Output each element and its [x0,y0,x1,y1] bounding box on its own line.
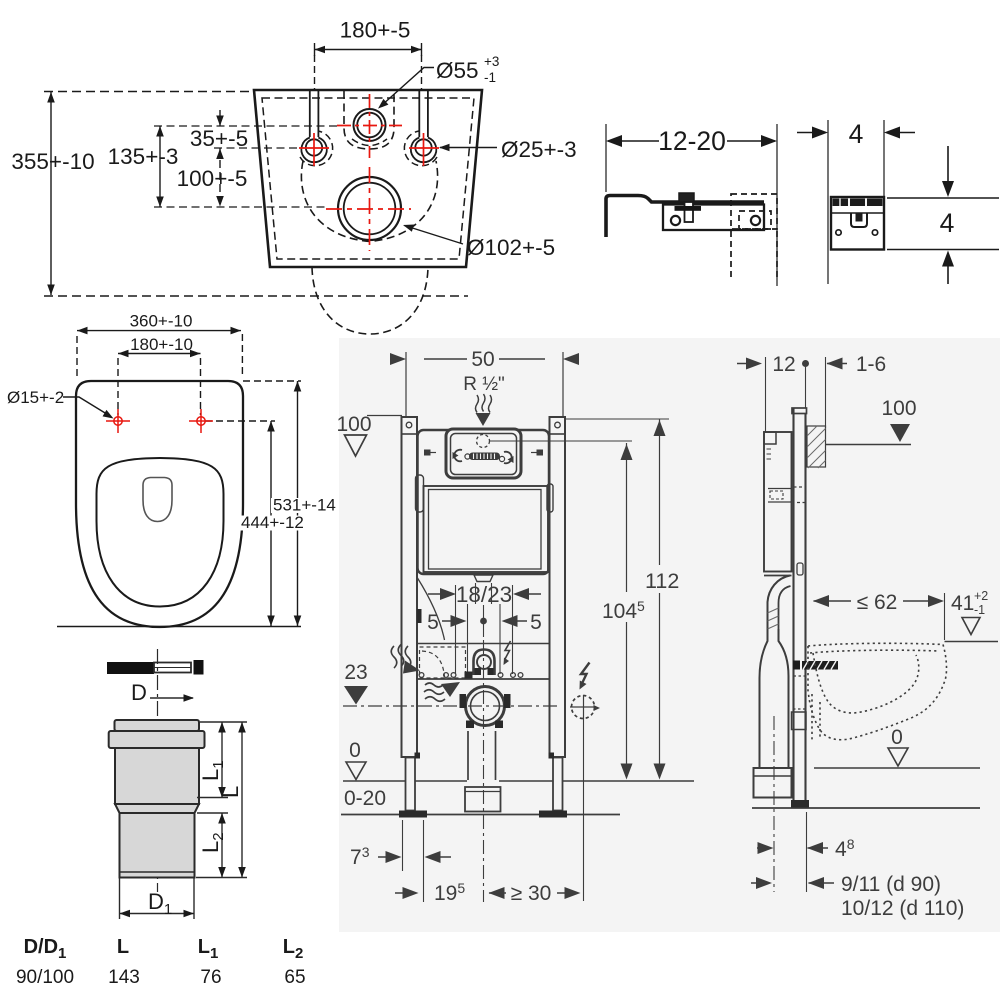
svg-text:0: 0 [891,726,903,749]
svg-text:100: 100 [336,413,371,436]
svg-text:D: D [131,680,147,705]
svg-text:444+-12: 444+-12 [241,513,304,532]
svg-text:-1: -1 [974,603,985,617]
svg-text:360+-10: 360+-10 [130,312,193,331]
svg-text:4: 4 [940,208,955,238]
svg-text:23: 23 [344,661,367,684]
svg-text:143: 143 [108,967,140,988]
svg-text:180+-5: 180+-5 [340,18,411,43]
svg-text:R ½": R ½" [463,374,505,395]
svg-text:Ø15+-2: Ø15+-2 [7,388,64,407]
svg-text:76: 76 [200,967,221,988]
svg-text:12-20: 12-20 [658,126,726,156]
svg-text:100+-5: 100+-5 [177,166,248,191]
svg-text:18/23: 18/23 [456,582,512,607]
svg-text:0-20: 0-20 [344,787,386,810]
svg-text:4: 4 [849,119,864,149]
svg-text:Ø102+-5: Ø102+-5 [467,235,555,260]
svg-text:65: 65 [284,967,305,988]
svg-text:35+-5: 35+-5 [190,126,248,151]
svg-text:112: 112 [645,569,679,593]
svg-text:180+-10: 180+-10 [130,335,193,354]
svg-text:10/12 (d 110): 10/12 (d 110) [841,897,964,920]
svg-text:Ø55: Ø55 [436,58,479,83]
svg-text:50: 50 [471,348,494,371]
svg-text:+2: +2 [974,589,988,603]
svg-text:41: 41 [951,592,974,615]
svg-text:≥ 30: ≥ 30 [511,882,552,905]
svg-text:12: 12 [772,353,795,376]
svg-text:L: L [218,786,243,798]
svg-text:531+-14: 531+-14 [273,496,336,515]
svg-text:0: 0 [349,739,361,762]
svg-text:+3: +3 [484,54,499,69]
svg-text:135+-3: 135+-3 [108,144,179,169]
svg-text:≤ 62: ≤ 62 [857,591,898,614]
svg-text:-1: -1 [484,70,496,85]
svg-text:5: 5 [427,611,439,634]
svg-text:L: L [117,936,129,958]
svg-text:5: 5 [530,611,542,634]
svg-text:Ø25+-3: Ø25+-3 [501,137,577,162]
svg-text:1-6: 1-6 [856,353,886,376]
svg-text:100: 100 [881,397,916,420]
svg-text:90/100: 90/100 [16,967,74,988]
svg-text:9/11 (d 90): 9/11 (d 90) [841,873,941,896]
svg-text:355+-10: 355+-10 [11,149,94,174]
